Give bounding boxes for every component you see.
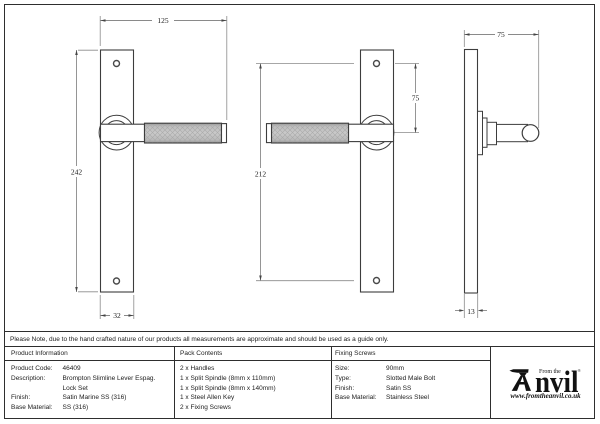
- svg-text:242: 242: [71, 168, 83, 177]
- svg-text:212: 212: [255, 170, 267, 179]
- svg-text:75: 75: [497, 30, 505, 39]
- svg-text:75: 75: [412, 94, 420, 103]
- svg-text:13: 13: [467, 307, 475, 316]
- svg-text:32: 32: [113, 311, 121, 320]
- svg-text:125: 125: [157, 16, 169, 25]
